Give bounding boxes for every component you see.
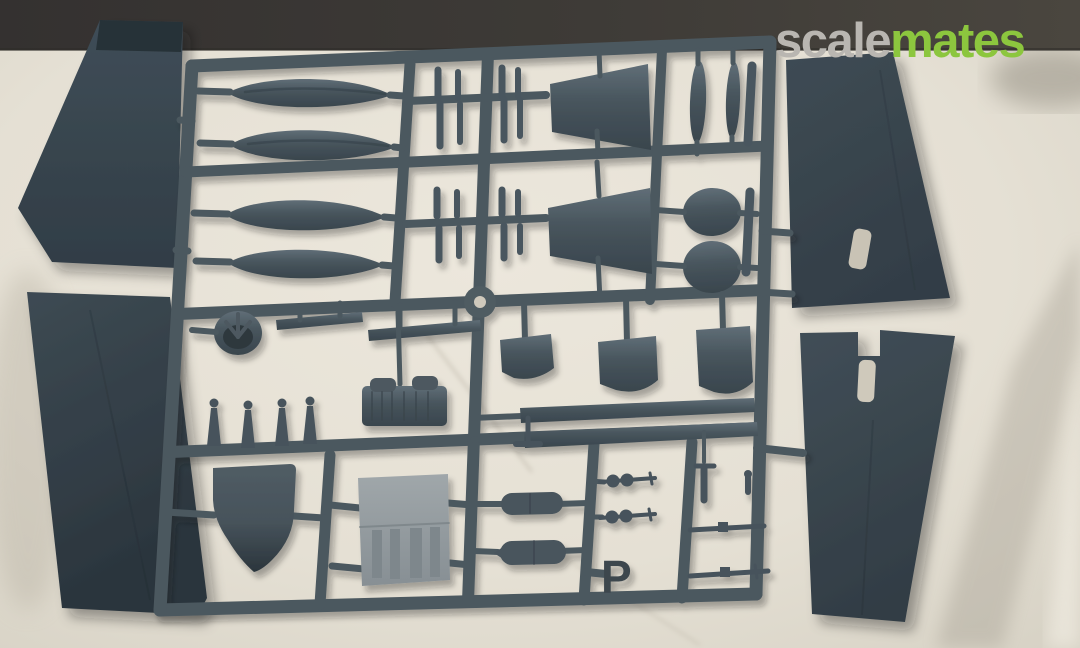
sprue-center-ring (464, 286, 496, 318)
sprue-photo-canvas: P scalemates (0, 0, 1080, 648)
gate-stub (448, 503, 472, 505)
gate-stub (332, 566, 364, 569)
gate-stub (176, 250, 188, 251)
gate-stub (474, 551, 498, 552)
gate-stub (450, 563, 470, 565)
gate-stub (473, 416, 522, 418)
wing-slot-cutout (857, 360, 876, 403)
gate-stub (757, 448, 803, 453)
gate-stub (524, 302, 525, 340)
small-bar-2 (746, 192, 750, 272)
gate-stub (192, 330, 216, 332)
watermark-mates: mates (890, 14, 1024, 68)
gate-stub (330, 505, 360, 508)
gate-stub (473, 439, 526, 440)
gate-stub (180, 120, 192, 121)
cowl-dome-3 (696, 326, 753, 394)
sprue-letter-p: P (601, 551, 632, 603)
watermark: scalemates (775, 14, 1025, 68)
cowl-dome-2 (598, 336, 658, 392)
gate-stub (398, 312, 400, 384)
gate-stub (762, 231, 790, 233)
gate-stub (626, 298, 627, 342)
cylinder-part-1 (512, 503, 552, 504)
photo-model-kit-sprue: P scalemates (0, 0, 1080, 648)
small-bar-1 (748, 66, 752, 142)
gate-stub (166, 512, 214, 515)
cowl-dome-1 (500, 334, 554, 379)
wing-top-left-shaded-tip (96, 20, 183, 52)
watermark-scale: scale (775, 14, 890, 68)
gate-stub (722, 294, 723, 330)
gate-stub (294, 516, 324, 518)
gate-stub (760, 292, 792, 294)
